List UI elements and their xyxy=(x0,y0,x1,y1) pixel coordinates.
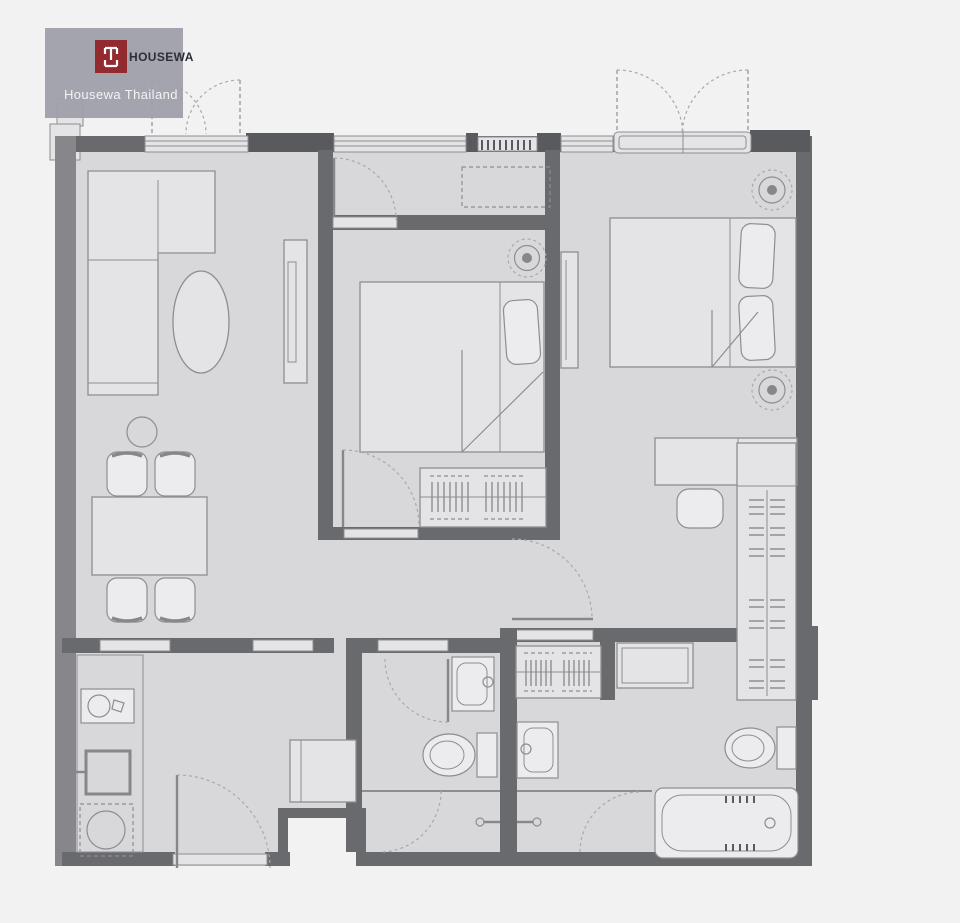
toilet xyxy=(725,727,796,769)
toilet xyxy=(423,733,497,777)
ac-grille xyxy=(478,137,537,151)
window xyxy=(561,136,613,152)
housewa-logo-icon xyxy=(95,40,127,73)
brand-name: HOUSEWA xyxy=(129,50,194,64)
wall-column xyxy=(794,626,818,700)
shoe-cabinet xyxy=(290,740,356,802)
pass-threshold xyxy=(100,640,170,651)
wash-basin xyxy=(452,657,494,711)
wall-solid xyxy=(246,133,334,152)
wall xyxy=(796,136,812,866)
light-center xyxy=(767,185,777,195)
toilet-bowl xyxy=(423,734,475,776)
logo-glyph-strokes xyxy=(105,48,117,66)
right-door-swings xyxy=(617,70,748,136)
dining-chair xyxy=(107,578,147,622)
wash-basin xyxy=(517,722,558,778)
wall xyxy=(62,852,175,866)
door-threshold xyxy=(333,217,397,228)
wall xyxy=(545,150,560,532)
dining-chair xyxy=(155,578,195,622)
entrance-threshold xyxy=(173,854,267,865)
wall-post xyxy=(537,133,561,152)
door-threshold xyxy=(378,640,448,651)
window xyxy=(145,136,248,152)
watermark-logo: HOUSEWA Housewa Thailand xyxy=(45,28,183,118)
fridge-handle-knob xyxy=(70,769,76,775)
toilet-tank xyxy=(477,733,497,777)
floor-plan-drawing xyxy=(0,0,960,923)
wall xyxy=(55,136,76,866)
door-threshold xyxy=(511,630,593,640)
dining-chair xyxy=(155,452,195,496)
toilet-tank xyxy=(777,727,796,769)
light-center xyxy=(522,253,532,263)
brand-subtitle: Housewa Thailand xyxy=(64,87,178,102)
wall xyxy=(318,150,333,540)
floor-plan-page: HOUSEWA Housewa Thailand xyxy=(0,0,960,923)
kitchen-sink xyxy=(81,689,134,723)
tv-console xyxy=(561,252,578,368)
light-center xyxy=(767,385,777,395)
vanity-cabinet xyxy=(617,643,693,688)
windows xyxy=(145,132,751,153)
coffee-table xyxy=(173,271,229,373)
window xyxy=(334,136,466,152)
dining-table xyxy=(92,497,207,575)
door-threshold xyxy=(344,529,418,538)
pass-threshold xyxy=(253,640,313,651)
dining-chair xyxy=(107,452,147,496)
wall xyxy=(500,628,517,852)
stool xyxy=(677,489,723,528)
bathtub xyxy=(655,788,798,858)
wall-solid xyxy=(750,130,810,152)
pillow xyxy=(738,223,775,289)
wall xyxy=(600,642,615,700)
pillow xyxy=(503,299,541,365)
wall-post xyxy=(466,133,478,152)
logo-glyph xyxy=(95,40,127,73)
